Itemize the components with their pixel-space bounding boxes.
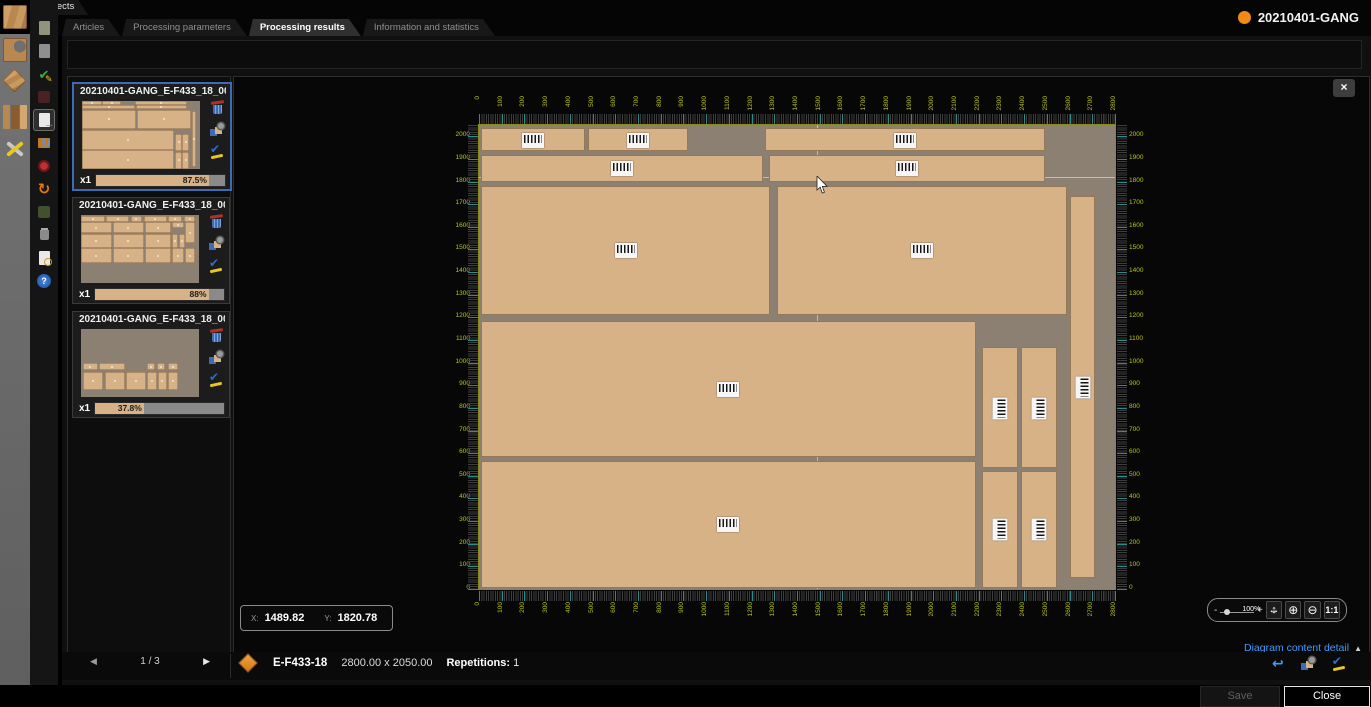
ruler-tick [1117,227,1127,228]
ruler-tick [524,591,525,601]
ruler-label: 2100 [952,96,959,110]
ruler-label: 1700 [861,602,868,616]
ruler-tick [729,591,730,601]
preview-part [113,222,144,233]
board-name: E-F433-18 [273,657,327,669]
ruler-tick [468,544,478,545]
ruler-tick [502,114,503,124]
ruler-label: 800 [657,96,664,107]
preview-part [99,363,125,370]
ruler-tick [468,159,478,160]
ruler-label: 900 [448,381,470,388]
project-badge: 20210401-GANG [1238,10,1359,25]
ruler-label: 2000 [929,96,936,110]
placed-part[interactable] [982,471,1017,588]
ruler-label: 1200 [448,313,470,320]
ruler-tick [911,591,912,601]
ruler-tick [1117,182,1127,183]
ruler-label: 1900 [907,96,914,110]
ruler-tick [1117,340,1127,341]
ruler-label: 1900 [907,602,914,616]
ruler-label: 100 [1129,562,1151,569]
ruler-label: 1700 [448,200,470,207]
tab-processing-parameters[interactable]: Processing parameters [122,19,247,36]
ruler-tick [468,453,478,454]
x-value: 1489.82 [265,612,305,624]
ruler-tick [706,591,707,601]
ruler-top-ticks [479,114,1115,124]
ruler-label: 2400 [1020,602,1027,616]
ruler-tick [1047,114,1048,124]
preview-part [184,216,196,222]
tools-module-icon[interactable] [3,137,27,161]
ruler-tick [524,114,525,124]
preview-part [82,105,134,109]
ruler-label: 2800 [1111,602,1118,616]
repetitions: Repetitions: 1 [446,657,519,669]
ruler-tick [468,272,478,273]
ruler-label: 1600 [448,223,470,230]
document-search-icon[interactable] [34,248,54,268]
ruler-tick [1001,591,1002,601]
ruler-tick [547,114,548,124]
zoom-slider-knob[interactable] [1224,609,1230,615]
ruler-tick [820,114,821,124]
ruler-label: 1400 [448,268,470,275]
ruler-tick [468,340,478,341]
ruler-label: 2800 [1111,96,1118,110]
ruler-label: 1300 [770,602,777,616]
ruler-label: 1500 [1129,245,1151,252]
ruler-tick [842,114,843,124]
stock-sheet[interactable] [479,125,1115,589]
ruler-label: 400 [448,494,470,501]
ruler-label: 800 [657,602,664,613]
next-page-icon[interactable]: ▶ [203,656,210,667]
preview-part [157,363,165,370]
close-diagram-icon[interactable]: × [1333,79,1355,97]
preview-part [81,234,112,248]
tab-processing-results[interactable]: Processing results [249,19,361,36]
ruler-label: 1600 [1129,223,1151,230]
ruler-tick [1117,317,1127,318]
ruler-tick [1024,591,1025,601]
board-dimensions: 2800.00 x 2050.00 [341,657,432,669]
page-indicator: 1 / 3 [140,656,159,667]
diagram-thumbnail-3[interactable]: 20210401-GANG_E-F433_18_000... ✔ x1 37.8… [72,311,230,418]
ruler-label: 2000 [1129,132,1151,139]
report-icon[interactable] [34,18,54,38]
ruler-label: 200 [520,96,527,107]
ruler-label: 2600 [1066,602,1073,616]
ruler-label: 2400 [1020,96,1027,110]
ruler-tick [638,591,639,601]
ruler-label: 600 [1129,449,1151,456]
ruler-tick [468,408,478,409]
ruler-label: 2100 [952,602,959,616]
ruler-tick [1115,591,1116,601]
ruler-label: 600 [611,96,618,107]
ruler-label: 700 [1129,427,1151,434]
placed-part[interactable] [777,186,1067,315]
ruler-label: 1100 [448,336,470,343]
ruler-right-ticks [1117,125,1127,589]
edit-diagram-icon[interactable]: ✔ [210,145,224,158]
save-button[interactable]: Save [1200,686,1280,707]
ruler-label: 2300 [997,602,1004,616]
ruler-tick [468,385,478,386]
thumbnail-preview [81,215,199,283]
prev-page-icon[interactable]: ◀ [90,656,97,667]
close-button[interactable]: Close [1284,686,1370,707]
ruler-tick [1117,363,1127,364]
ruler-label: 1000 [448,359,470,366]
tab-articles[interactable]: Articles [62,19,120,36]
ruler-tick [1117,498,1127,499]
preview-part [185,222,196,242]
ruler-label: 2700 [1088,96,1095,110]
placed-part[interactable] [1021,347,1057,467]
ruler-label: 1800 [448,178,470,185]
boards-module-icon[interactable] [2,68,26,92]
transfer-diagram-icon[interactable] [209,237,223,250]
ruler-tick [468,182,478,183]
ruler-tick [468,204,478,205]
ruler-tick [661,114,662,124]
ruler-label: 1100 [1129,336,1151,343]
ruler-tick [547,591,548,601]
project-name: 20210401-GANG [1258,10,1359,25]
preview-part [182,134,189,152]
repetition-multiplier: x1 [79,289,90,300]
ruler-tick [797,591,798,601]
stop-process-icon[interactable] [34,87,54,107]
zoom-in-icon: ⊕ [1288,604,1298,616]
barcode-label [627,133,649,148]
placed-part[interactable] [982,347,1017,467]
preview-part [145,222,171,233]
transfer-diagram-icon[interactable] [1301,657,1315,670]
ruler-label: 0 [1129,585,1151,592]
preview-part [126,372,146,390]
ruler-label: 1400 [1129,268,1151,275]
ruler-tick [1117,249,1127,250]
ruler-label: 1100 [725,96,732,110]
ruler-label: 1800 [884,602,891,616]
barcode-label [1075,376,1090,398]
preview-part [172,222,184,227]
ruler-label: 500 [448,472,470,479]
ruler-label: 0 [448,585,470,592]
transfer-diagram-icon[interactable] [209,351,223,364]
ruler-tick [468,249,478,250]
ruler-tick [842,591,843,601]
barcode-label [611,161,633,176]
actual-size-button[interactable]: 1:1 [1324,601,1340,619]
ruler-tick [1115,114,1116,124]
move-vertical-icon: ↕ [1271,605,1277,616]
ruler-tick [1117,204,1127,205]
ruler-tick [1117,385,1127,386]
diagram-thumbnail-1[interactable]: 20210401-GANG_E-F433_18_000... ✔ x1 87.5… [72,82,232,191]
barcode-label [717,382,739,397]
preview-part [172,248,184,263]
preview-part [182,152,189,169]
ruler-label: 1300 [448,291,470,298]
ruler-tick [774,114,775,124]
preview-part [144,216,168,222]
ruler-tick [752,114,753,124]
ruler-tick [468,476,478,477]
ruler-label: 1000 [1129,359,1151,366]
machine-icon[interactable] [34,41,54,61]
ruler-tick [638,114,639,124]
ruler-right-labels: 0100200300400500600700800900100011001200… [1129,125,1151,589]
recalculate-icon[interactable]: ↻ [34,179,54,199]
tab-information-statistics[interactable]: Information and statistics [363,19,495,36]
ruler-bottom-ticks [479,591,1115,601]
ruler-tick [865,591,866,601]
delete-diagram-icon[interactable] [210,329,223,342]
help-icon[interactable]: ? [34,271,54,291]
placed-part[interactable] [481,321,975,457]
ruler-tick [593,591,594,601]
ruler-tick [1024,114,1025,124]
ruler-bottom-labels: 0100200300400500600700800900100011001200… [479,602,1115,621]
ruler-tick [1117,453,1127,454]
transfer-diagram-icon[interactable] [210,123,224,136]
ruler-tick [683,114,684,124]
ruler-left-ticks [468,125,478,589]
barcode-label [1031,519,1046,541]
panels-module-icon[interactable] [3,5,27,29]
ruler-label: 2600 [1066,96,1073,110]
edit-diagram-icon[interactable]: ✔ [209,259,223,272]
preview-part [81,222,112,233]
ruler-tick [797,114,798,124]
ruler-tick [865,114,866,124]
zoom-out-icon: ⊖ [1308,604,1318,616]
placed-part[interactable] [481,186,770,315]
abort-icon[interactable] [34,156,54,176]
project-status-icon [1238,11,1251,24]
ruler-tick [956,591,957,601]
ruler-label: 2700 [1088,602,1095,616]
delete-diagram-icon[interactable] [210,215,223,228]
repetition-multiplier: x1 [79,403,90,414]
ruler-label: 500 [589,602,596,613]
board-icon [238,653,258,673]
preview-part [83,363,97,370]
ruler-label: 2200 [975,602,982,616]
preview-part [136,105,187,109]
ruler-label: 2500 [1043,602,1050,616]
diagram-action-icons: ↩ ✔ [1272,656,1346,670]
preview-part [105,372,125,390]
cursor-coordinates: X: 1489.82 Y: 1820.78 [240,605,393,631]
ruler-tick [502,591,503,601]
ruler-label: 1900 [1129,155,1151,162]
preview-part [185,248,196,263]
ruler-label: 700 [448,427,470,434]
ruler-label: 1300 [770,96,777,110]
shaped-parts-module-icon[interactable] [3,38,27,62]
thumbnail-title: 20210401-GANG_E-F433_18_000... [80,86,226,97]
y-value: 1820.78 [337,612,377,624]
ruler-label: 100 [498,96,505,107]
preview-part [175,152,182,169]
ruler-label: 600 [448,449,470,456]
nesting-icon[interactable] [34,202,54,222]
sync-folder-icon[interactable]: ↻ [34,133,54,153]
ruler-label: 400 [1129,494,1151,501]
ruler-label: 100 [498,602,505,613]
status-divider [230,654,231,678]
ruler-tick [479,591,480,601]
materials-module-icon[interactable] [3,105,27,129]
ruler-label: 1000 [702,96,709,110]
ruler-label: 1800 [1129,178,1151,185]
ruler-tick [1117,589,1127,590]
ruler-label: 0 [475,602,482,606]
preview-part [175,134,182,152]
edit-diagram-icon[interactable]: ✔ [209,373,223,386]
thumbnail-title: 20210401-GANG_E-F433_18_000... [79,314,225,325]
ruler-label: 200 [1129,540,1151,547]
ruler-tick [615,114,616,124]
ruler-tick [979,114,980,124]
preview-part [147,363,155,370]
ruler-tick [911,114,912,124]
preview-part [83,372,103,390]
ruler-label: 100 [448,562,470,569]
ruler-label: 1300 [1129,291,1151,298]
ruler-label: 300 [1129,517,1151,524]
ruler-tick [752,591,753,601]
ruler-tick [774,591,775,601]
efficiency-bar: 37.8% [94,402,225,415]
zoom-toolbar: - 100% + ↔ ↕ ⊕ ⊖ 1:1 [1207,598,1347,622]
efficiency-bar: 88% [94,288,225,301]
ruler-tick [1070,591,1071,601]
ruler-tick [1117,521,1127,522]
ruler-label: 2300 [997,96,1004,110]
thumbnail-preview [81,329,199,397]
ruler-label: 0 [475,96,482,100]
ruler-label: 1500 [816,96,823,110]
mouse-cursor [816,176,828,194]
preview-part [102,101,120,104]
placed-part[interactable] [765,128,1045,151]
ruler-tick [1117,431,1127,432]
ruler-label: 2000 [448,132,470,139]
preview-part [145,234,171,248]
preview-part [106,216,130,222]
processing-results-icon[interactable]: → [34,110,54,130]
diagram-thumbnail-2[interactable]: 20210401-GANG_E-F433_18_000... ✔ x1 88% [72,197,230,304]
ruler-label: 1200 [748,602,755,616]
edit-check-icon[interactable]: ✔✎ [34,64,54,84]
trash-icon[interactable] [34,225,54,245]
barcode-label [993,397,1008,419]
placed-part[interactable] [769,155,1045,182]
placed-part[interactable] [1021,471,1057,588]
zoom-in-button[interactable]: ⊕ [1285,601,1301,619]
placed-part[interactable] [481,461,975,588]
zoom-slider-minus[interactable]: - [1214,605,1217,616]
placed-part[interactable] [481,155,763,182]
ruler-tick [706,114,707,124]
footer-bar [0,685,1371,707]
ruler-label: 600 [611,602,618,613]
ruler-label: 1200 [748,96,755,110]
ruler-tick [729,114,730,124]
barcode-label [1031,397,1046,419]
edit-confirm-icon[interactable]: ✔ [1332,657,1346,670]
delete-diagram-icon[interactable] [211,101,224,114]
thumbnail-title: 20210401-GANG_E-F433_18_000... [79,200,225,211]
ruler-label: 1500 [448,245,470,252]
ruler-tick [1092,591,1093,601]
preview-part [168,216,182,222]
ruler-label: 900 [679,96,686,107]
ruler-tick [1117,136,1127,137]
ruler-label: 1600 [838,96,845,110]
preview-part [137,110,191,129]
ruler-tick [888,114,889,124]
ruler-label: 1500 [816,602,823,616]
preview-part [168,372,177,390]
preview-part [168,363,177,370]
ruler-tick [468,521,478,522]
preview-part [81,248,112,263]
preview-part [82,150,174,169]
preview-part [131,216,143,222]
thumbnail-preview [82,101,200,169]
ruler-tick [1070,114,1071,124]
ruler-tick [468,431,478,432]
ruler-label: 900 [679,602,686,613]
placed-part[interactable] [481,128,584,151]
ruler-label: 1100 [725,602,732,616]
ruler-label: 800 [1129,404,1151,411]
preview-part [82,130,174,150]
ruler-tick [979,591,980,601]
placed-part[interactable] [1070,196,1095,578]
placed-part[interactable] [588,128,687,151]
preview-part [158,372,167,390]
efficiency-bar: 87.5% [95,174,226,187]
ruler-top-labels: 0100200300400500600700800900100011001200… [479,96,1115,115]
pan-button[interactable]: ↔ ↕ [1266,601,1282,619]
ruler-label: 800 [448,404,470,411]
ruler-tick [570,591,571,601]
ruler-tick [661,591,662,601]
ruler-left-labels: 0100200300400500600700800900100011001200… [448,125,470,589]
zoom-out-button[interactable]: ⊖ [1304,601,1320,619]
ruler-label: 400 [566,602,573,613]
ruler-label: 1200 [1129,313,1151,320]
ruler-tick [1117,544,1127,545]
ruler-tick [593,114,594,124]
barcode-label [911,243,933,258]
ruler-label: 1900 [448,155,470,162]
ruler-label: 1700 [861,96,868,110]
ruler-tick [468,227,478,228]
ruler-tick [468,566,478,567]
zoom-slider[interactable]: 100% [1220,605,1254,615]
undo-arrow-icon[interactable]: ↩ [1272,656,1284,670]
